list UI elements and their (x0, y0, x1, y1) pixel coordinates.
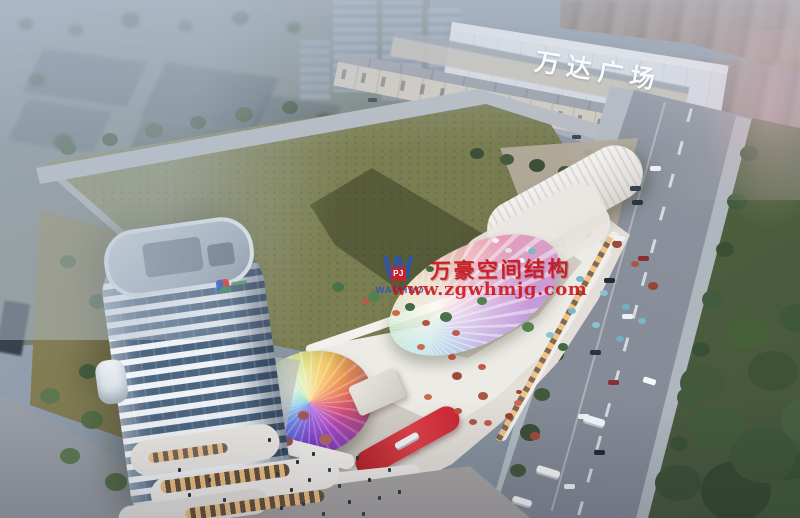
aerial-rendering-scene: 万达广场 W PJ WANHAO 万豪空间结构 www.zgwhmjg.com (0, 0, 800, 518)
white-umbrellas (492, 238, 499, 243)
bottom-vignette (0, 398, 800, 518)
left-haze (0, 0, 400, 340)
terrace-trees-red (452, 372, 462, 380)
pink-haze (700, 30, 800, 230)
watermark-url: www.zgwhmjg.com (391, 279, 587, 300)
